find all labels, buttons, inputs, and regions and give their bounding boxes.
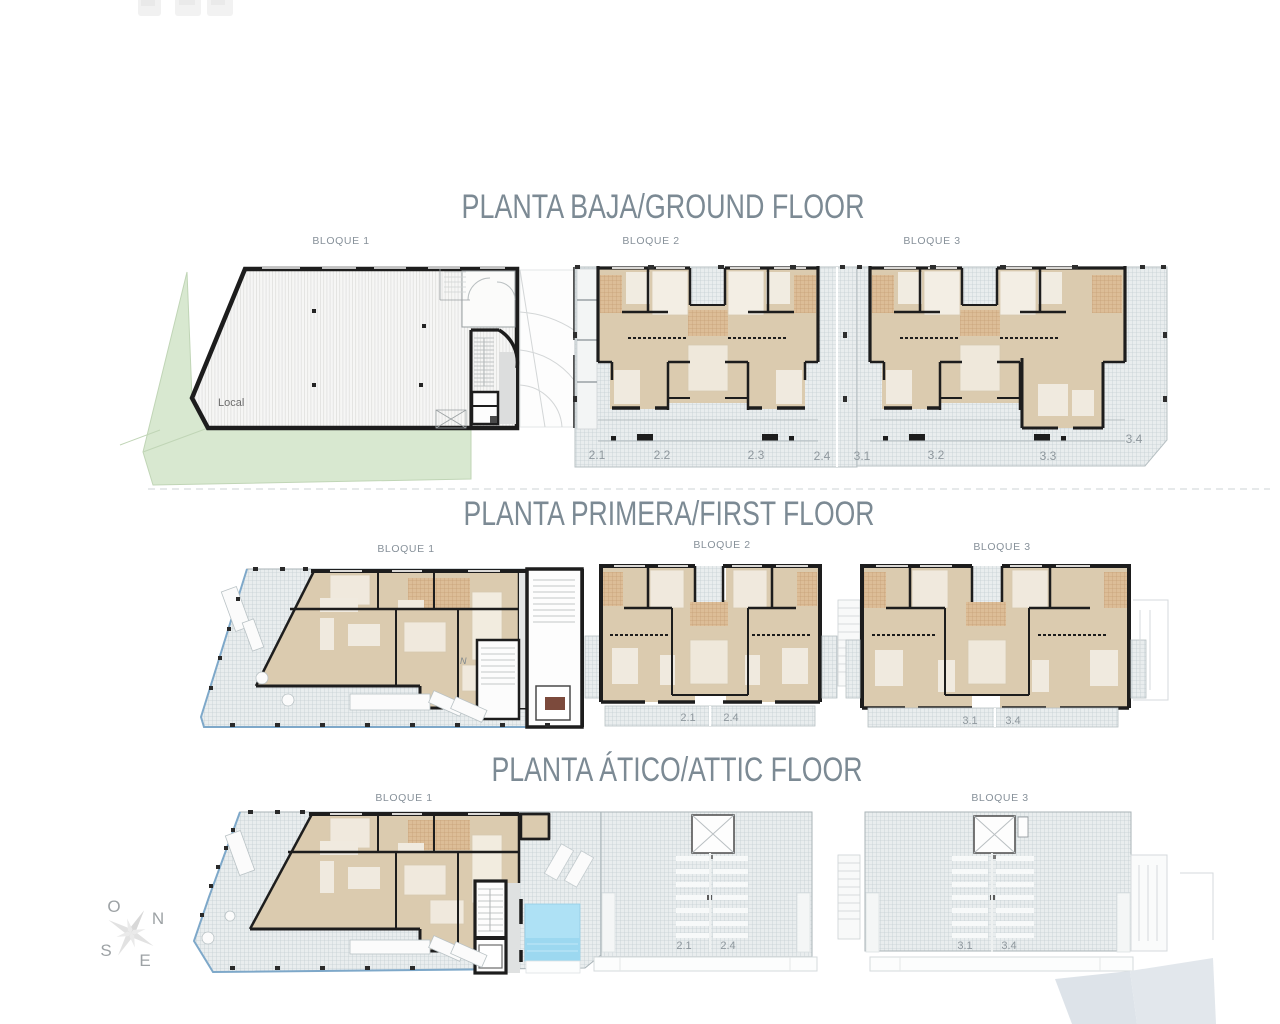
svg-text:3.2: 3.2 — [928, 448, 945, 462]
svg-text:PLANTA ÁTICO/ATTIC FLOOR: PLANTA ÁTICO/ATTIC FLOOR — [492, 751, 863, 789]
svg-text:2.4: 2.4 — [814, 449, 831, 463]
svg-text:3.4: 3.4 — [1005, 715, 1020, 727]
svg-text:BLOQUE 1: BLOQUE 1 — [377, 543, 434, 555]
svg-text:3.1: 3.1 — [854, 449, 871, 463]
svg-text:BLOQUE 2: BLOQUE 2 — [622, 235, 679, 247]
svg-text:BLOQUE 1: BLOQUE 1 — [312, 235, 369, 247]
svg-text:BLOQUE 1: BLOQUE 1 — [375, 792, 432, 804]
svg-text:PLANTA BAJA/GROUND FLOOR: PLANTA BAJA/GROUND FLOOR — [462, 188, 865, 226]
svg-text:3.4: 3.4 — [1126, 432, 1143, 446]
svg-text:3.1: 3.1 — [957, 940, 972, 952]
svg-text:2.1: 2.1 — [676, 940, 691, 952]
svg-text:N: N — [152, 909, 164, 928]
svg-text:2.4: 2.4 — [720, 940, 735, 952]
svg-text:Local: Local — [218, 397, 244, 409]
svg-text:BLOQUE 3: BLOQUE 3 — [903, 235, 960, 247]
svg-text:2.4: 2.4 — [723, 712, 738, 724]
svg-text:E: E — [139, 951, 150, 970]
svg-text:2.2: 2.2 — [654, 448, 671, 462]
svg-text:BLOQUE 2: BLOQUE 2 — [693, 539, 750, 551]
svg-text:3.1: 3.1 — [962, 715, 977, 727]
svg-text:S: S — [100, 941, 111, 960]
svg-text:N: N — [460, 656, 467, 666]
svg-text:3.4: 3.4 — [1001, 940, 1016, 952]
svg-text:2.1: 2.1 — [680, 712, 695, 724]
svg-text:BLOQUE 3: BLOQUE 3 — [973, 541, 1030, 553]
svg-text:2.1: 2.1 — [589, 448, 606, 462]
svg-text:2.3: 2.3 — [748, 448, 765, 462]
svg-text:BLOQUE 3: BLOQUE 3 — [971, 792, 1028, 804]
svg-text:PLANTA PRIMERA/FIRST FLOOR: PLANTA PRIMERA/FIRST FLOOR — [464, 495, 875, 533]
svg-text:3.3: 3.3 — [1040, 449, 1057, 463]
svg-text:O: O — [107, 897, 120, 916]
